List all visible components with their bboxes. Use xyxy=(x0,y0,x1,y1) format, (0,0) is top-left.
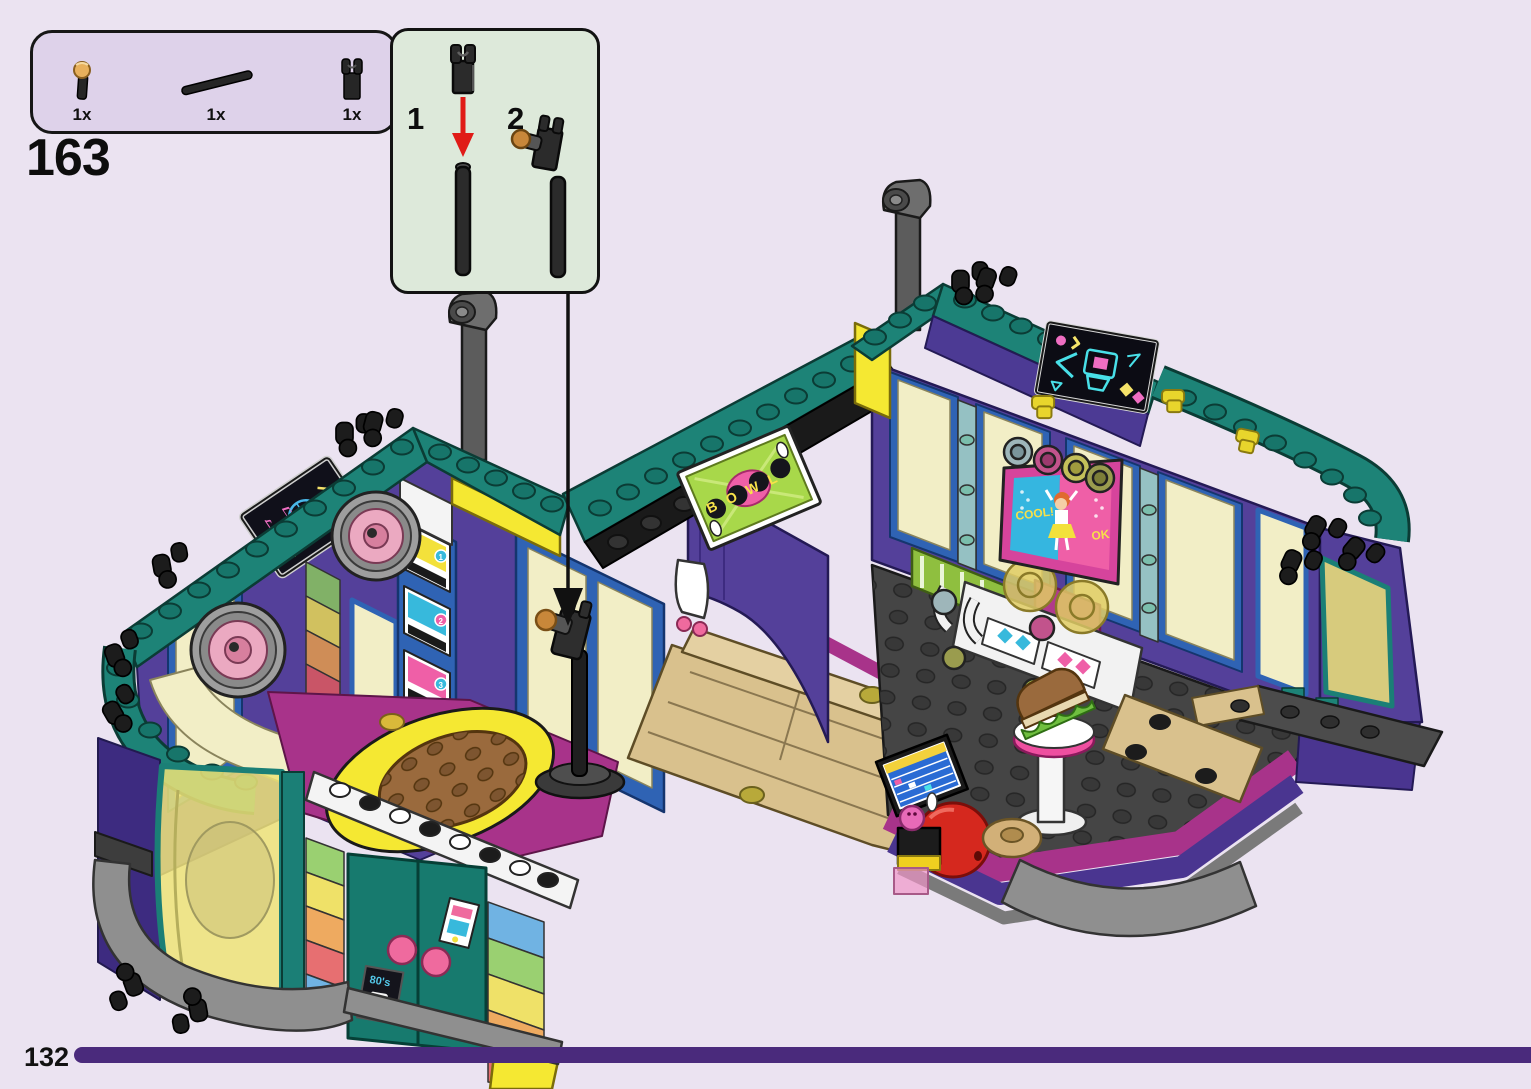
footer-bar xyxy=(74,1047,1531,1063)
part-qty: 1x xyxy=(207,105,226,125)
part-bar: 1x xyxy=(173,59,259,125)
svg-text:1: 1 xyxy=(439,553,444,562)
substep-1-diagram xyxy=(451,45,475,275)
svg-text:2: 2 xyxy=(439,617,444,626)
door-handle-icon xyxy=(388,936,416,964)
roller-skate-icon xyxy=(676,560,708,636)
subassembly-diagram xyxy=(393,31,597,291)
door-handle-icon xyxy=(422,948,450,976)
page-number: 132 xyxy=(24,1042,69,1073)
right-wing: COOL! OK xyxy=(852,180,1442,936)
substep-2-label: 2 xyxy=(507,101,524,137)
subassembly-box: 1 2 xyxy=(390,28,600,294)
bar-part-icon xyxy=(173,59,259,103)
parts-callout: 1x 1x 1x xyxy=(30,30,398,134)
microphone-part-icon xyxy=(67,59,97,103)
substep-1-label: 1 xyxy=(407,101,424,137)
svg-text:3: 3 xyxy=(439,681,444,690)
speaker-icon xyxy=(191,603,285,697)
lego-model-illustration: ♪ ♫ 1 xyxy=(0,0,1531,1089)
callout-arrow xyxy=(540,290,600,635)
instruction-page: ♪ ♫ 1 xyxy=(0,0,1531,1089)
part-qty: 1x xyxy=(343,105,362,125)
substep-2-diagram xyxy=(512,115,565,277)
clip-part-icon xyxy=(335,57,369,103)
part-clip: 1x xyxy=(335,57,369,125)
lamp-post-icon xyxy=(449,292,496,460)
part-qty: 1x xyxy=(73,105,92,125)
step-number: 163 xyxy=(26,128,110,188)
red-arrow-icon xyxy=(452,97,474,157)
part-microphone: 1x xyxy=(67,59,97,125)
round-seat xyxy=(983,819,1041,857)
speaker-icon xyxy=(332,492,420,580)
screen-ok-label: OK xyxy=(1091,527,1111,543)
